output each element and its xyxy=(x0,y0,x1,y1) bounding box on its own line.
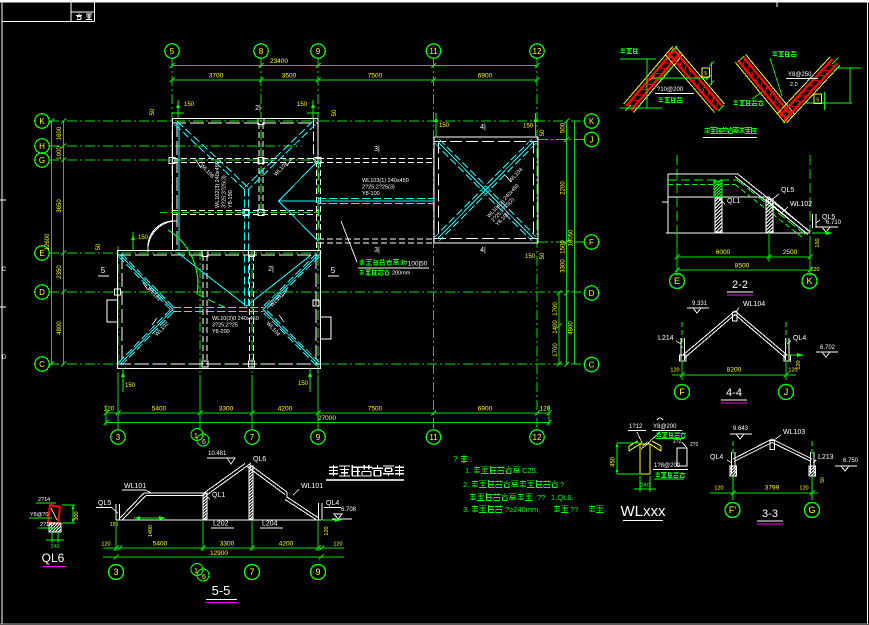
svg-text:QL6: QL6 xyxy=(253,456,266,463)
svg-text:F: F xyxy=(679,387,685,397)
svg-text:3?25;3?25(3): 3?25;3?25(3) xyxy=(222,175,228,208)
svg-text:4|: 4| xyxy=(480,124,486,131)
svg-text:6.702: 6.702 xyxy=(820,345,836,351)
svg-text:12: 12 xyxy=(533,433,542,442)
svg-text:500: 500 xyxy=(561,122,567,133)
svg-text:E: E xyxy=(39,249,44,258)
svg-text:??: ?? xyxy=(537,493,545,502)
svg-text:6.750: 6.750 xyxy=(843,458,859,464)
svg-text:10.481: 10.481 xyxy=(208,451,227,457)
svg-text:5: 5 xyxy=(704,71,707,77)
svg-text:1,QL6.: 1,QL6. xyxy=(551,493,574,502)
svg-text:4-4: 4-4 xyxy=(726,387,742,399)
svg-text:3500: 3500 xyxy=(282,73,297,80)
svg-text:2?25;2?25(3): 2?25;2?25(3) xyxy=(362,185,395,191)
svg-text:?: ? xyxy=(560,480,564,489)
svg-text:7500: 7500 xyxy=(368,73,383,80)
svg-text:L214: L214 xyxy=(658,335,674,342)
svg-text:2|: 2| xyxy=(268,266,274,273)
svg-text:?: ? xyxy=(453,455,458,464)
svg-text:5400: 5400 xyxy=(152,406,167,413)
svg-text:150: 150 xyxy=(815,238,821,247)
svg-text:5: 5 xyxy=(101,266,106,275)
svg-text:WL102: WL102 xyxy=(790,201,812,208)
svg-text:3650: 3650 xyxy=(57,199,63,213)
svg-text:6: 6 xyxy=(202,574,206,581)
svg-text:??: ?? xyxy=(570,505,578,514)
svg-text:23400: 23400 xyxy=(270,58,288,65)
svg-text:3?25;2?25: 3?25;2?25 xyxy=(212,323,238,329)
svg-text:4200: 4200 xyxy=(279,541,294,548)
svg-text:240: 240 xyxy=(640,483,651,489)
svg-text:K: K xyxy=(806,276,812,286)
svg-text:F': F' xyxy=(729,505,736,515)
svg-text:Y8-200: Y8-200 xyxy=(212,329,230,335)
svg-text:150: 150 xyxy=(523,124,534,130)
svg-text:1?12: 1?12 xyxy=(629,424,643,430)
svg-text:3300: 3300 xyxy=(561,259,567,273)
svg-text:8500: 8500 xyxy=(735,263,750,270)
svg-text:50: 50 xyxy=(96,243,102,250)
svg-text:WL10(2)0 240x450: WL10(2)0 240x450 xyxy=(212,316,259,322)
svg-text:27000: 27000 xyxy=(318,415,336,422)
svg-text:C25.: C25. xyxy=(522,466,538,475)
svg-text:K: K xyxy=(39,117,45,126)
svg-text:9.331: 9.331 xyxy=(692,301,708,307)
svg-text:1: 1 xyxy=(194,568,198,575)
svg-text:J: J xyxy=(590,136,594,145)
svg-text:G: G xyxy=(808,505,815,515)
svg-text:QL6: QL6 xyxy=(42,551,65,565)
svg-text:120: 120 xyxy=(714,486,723,492)
svg-text:WLxxx: WLxxx xyxy=(621,503,667,520)
svg-text:120: 120 xyxy=(670,368,679,374)
svg-text:8: 8 xyxy=(259,47,264,56)
svg-text:C: C xyxy=(2,267,7,273)
svg-text:2200: 2200 xyxy=(561,181,567,195)
svg-text:6900: 6900 xyxy=(478,406,493,413)
svg-text:5-5: 5-5 xyxy=(212,583,231,598)
svg-text:1: 1 xyxy=(194,433,198,440)
svg-text:200mm: 200mm xyxy=(392,271,411,277)
svg-text:3700: 3700 xyxy=(209,73,224,80)
svg-text:5: 5 xyxy=(331,266,336,275)
svg-text:1600: 1600 xyxy=(57,126,63,140)
svg-text:J: J xyxy=(784,387,789,397)
svg-text:6.710: 6.710 xyxy=(826,220,842,226)
svg-text:120: 120 xyxy=(799,486,808,492)
svg-text:9: 9 xyxy=(316,47,321,56)
svg-text:WL103(1) 240x450: WL103(1) 240x450 xyxy=(362,178,409,184)
svg-text:150: 150 xyxy=(297,102,308,108)
svg-text:3300: 3300 xyxy=(220,541,235,548)
svg-text:QL5: QL5 xyxy=(781,187,794,194)
svg-text:D: D xyxy=(589,289,595,298)
svg-text:150: 150 xyxy=(138,235,149,241)
svg-text:?100|50: ?100|50 xyxy=(404,261,428,268)
svg-text:2?14: 2?14 xyxy=(40,522,52,528)
svg-text:18050: 18050 xyxy=(569,229,575,246)
svg-text:4200: 4200 xyxy=(278,406,293,413)
svg-text:1400: 1400 xyxy=(553,320,559,334)
svg-text:WL103: WL103 xyxy=(783,429,805,436)
svg-text::: : xyxy=(470,455,472,464)
svg-text:C: C xyxy=(39,360,45,369)
svg-text:3: 3 xyxy=(113,567,118,577)
svg-text:2|: 2| xyxy=(255,105,261,112)
svg-text:3: 3 xyxy=(116,433,121,442)
svg-text:G: G xyxy=(39,156,45,165)
svg-text:150: 150 xyxy=(184,102,195,108)
svg-text:120: 120 xyxy=(333,542,342,548)
svg-text:1700: 1700 xyxy=(553,343,559,357)
svg-text:1?8@200: 1?8@200 xyxy=(654,463,681,469)
svg-text:K: K xyxy=(589,117,595,126)
svg-text:150: 150 xyxy=(298,381,309,387)
svg-text:4|: 4| xyxy=(480,247,486,254)
svg-text:2350: 2350 xyxy=(57,265,63,279)
svg-text:C: C xyxy=(589,361,595,370)
svg-text:7: 7 xyxy=(249,567,254,577)
svg-text:5400: 5400 xyxy=(153,541,168,548)
svg-text:11: 11 xyxy=(429,47,438,56)
svg-text:QL1: QL1 xyxy=(727,198,740,205)
svg-text:2-2: 2-2 xyxy=(732,279,748,291)
svg-text:D: D xyxy=(2,355,7,361)
svg-text:50: 50 xyxy=(150,108,156,115)
svg-text:11: 11 xyxy=(429,433,438,442)
svg-text:Y8@?0: Y8@?0 xyxy=(30,512,48,518)
svg-text:5: 5 xyxy=(170,47,175,56)
svg-text:3|: 3| xyxy=(374,247,380,254)
svg-text:QL4: QL4 xyxy=(793,335,806,342)
svg-text:6000: 6000 xyxy=(716,249,731,256)
svg-text:H: H xyxy=(39,142,45,151)
svg-text:WL101: WL101 xyxy=(124,483,146,490)
svg-text:3|: 3| xyxy=(374,146,380,153)
svg-text:12: 12 xyxy=(533,47,542,56)
svg-text:?≥240mm,: ?≥240mm, xyxy=(505,505,540,514)
svg-text:QL5: QL5 xyxy=(98,500,111,507)
svg-text:2.: 2. xyxy=(463,480,469,489)
svg-text:12600: 12600 xyxy=(45,233,51,250)
svg-text:240: 240 xyxy=(50,544,59,550)
svg-text:150: 150 xyxy=(110,522,119,528)
svg-text:3.: 3. xyxy=(463,505,469,514)
svg-text:2.0: 2.0 xyxy=(790,82,798,88)
svg-text:2500: 2500 xyxy=(783,249,798,256)
svg-text:F: F xyxy=(589,238,594,247)
svg-text:.: . xyxy=(604,505,606,514)
svg-text:12900: 12900 xyxy=(210,550,228,557)
svg-text:WL101: WL101 xyxy=(301,483,323,490)
svg-text:120: 120 xyxy=(810,267,819,273)
svg-text:QL1: QL1 xyxy=(212,492,225,499)
svg-text:9.643: 9.643 xyxy=(733,426,749,432)
svg-text:Y8@250: Y8@250 xyxy=(788,72,812,78)
svg-text:4800: 4800 xyxy=(569,321,575,335)
svg-text:9: 9 xyxy=(316,433,321,442)
svg-text:2?2: 2?2 xyxy=(690,442,699,448)
svg-text:1500: 1500 xyxy=(561,240,567,254)
svg-text:3799: 3799 xyxy=(765,485,780,492)
svg-text:L213: L213 xyxy=(818,454,834,461)
svg-text:1400: 1400 xyxy=(148,525,154,537)
svg-text:Y8-190: Y8-190 xyxy=(228,190,234,208)
svg-text:120: 120 xyxy=(788,368,797,374)
svg-text:WL104: WL104 xyxy=(743,301,765,308)
svg-text:L202: L202 xyxy=(213,521,229,528)
svg-text:6900: 6900 xyxy=(478,73,493,80)
svg-text:5: 5 xyxy=(816,98,819,104)
svg-text:3300: 3300 xyxy=(219,406,234,413)
svg-text:Y8-100: Y8-100 xyxy=(362,191,380,197)
svg-text:50: 50 xyxy=(540,129,546,136)
svg-text:6.708: 6.708 xyxy=(341,507,357,513)
svg-text:8200: 8200 xyxy=(727,367,742,374)
svg-text:7: 7 xyxy=(250,433,255,442)
svg-text:50: 50 xyxy=(332,109,338,116)
svg-text:4800: 4800 xyxy=(57,321,63,335)
svg-text:150: 150 xyxy=(439,123,450,129)
svg-text:300: 300 xyxy=(74,511,80,520)
svg-text:?10@200: ?10@200 xyxy=(657,87,684,93)
svg-text:50: 50 xyxy=(820,477,826,483)
svg-text:Y8@200: Y8@200 xyxy=(653,424,677,430)
svg-text:120: 120 xyxy=(104,406,115,413)
svg-text:WL102(3) 240x450: WL102(3) 240x450 xyxy=(215,161,221,208)
svg-text:7500: 7500 xyxy=(368,406,383,413)
svg-text:2?2: 2?2 xyxy=(673,439,682,445)
svg-text:E: E xyxy=(674,276,680,286)
svg-text:150: 150 xyxy=(525,254,536,260)
svg-text:150: 150 xyxy=(125,383,136,389)
svg-text:1700: 1700 xyxy=(553,302,559,316)
svg-text:6: 6 xyxy=(202,439,206,446)
svg-text:QL4: QL4 xyxy=(710,454,723,461)
svg-text:120: 120 xyxy=(101,542,110,548)
svg-text:50: 50 xyxy=(540,252,546,259)
svg-text:2?14: 2?14 xyxy=(38,497,50,503)
svg-text:1.: 1. xyxy=(465,466,471,475)
svg-text:450: 450 xyxy=(611,456,617,467)
svg-text:QL4: QL4 xyxy=(326,500,339,507)
svg-text:120: 120 xyxy=(324,526,330,535)
svg-text:L204: L204 xyxy=(262,521,278,528)
svg-text:9: 9 xyxy=(315,567,320,577)
svg-text:3-3: 3-3 xyxy=(762,508,778,520)
svg-text:1000: 1000 xyxy=(57,146,63,160)
svg-text:D: D xyxy=(39,288,45,297)
